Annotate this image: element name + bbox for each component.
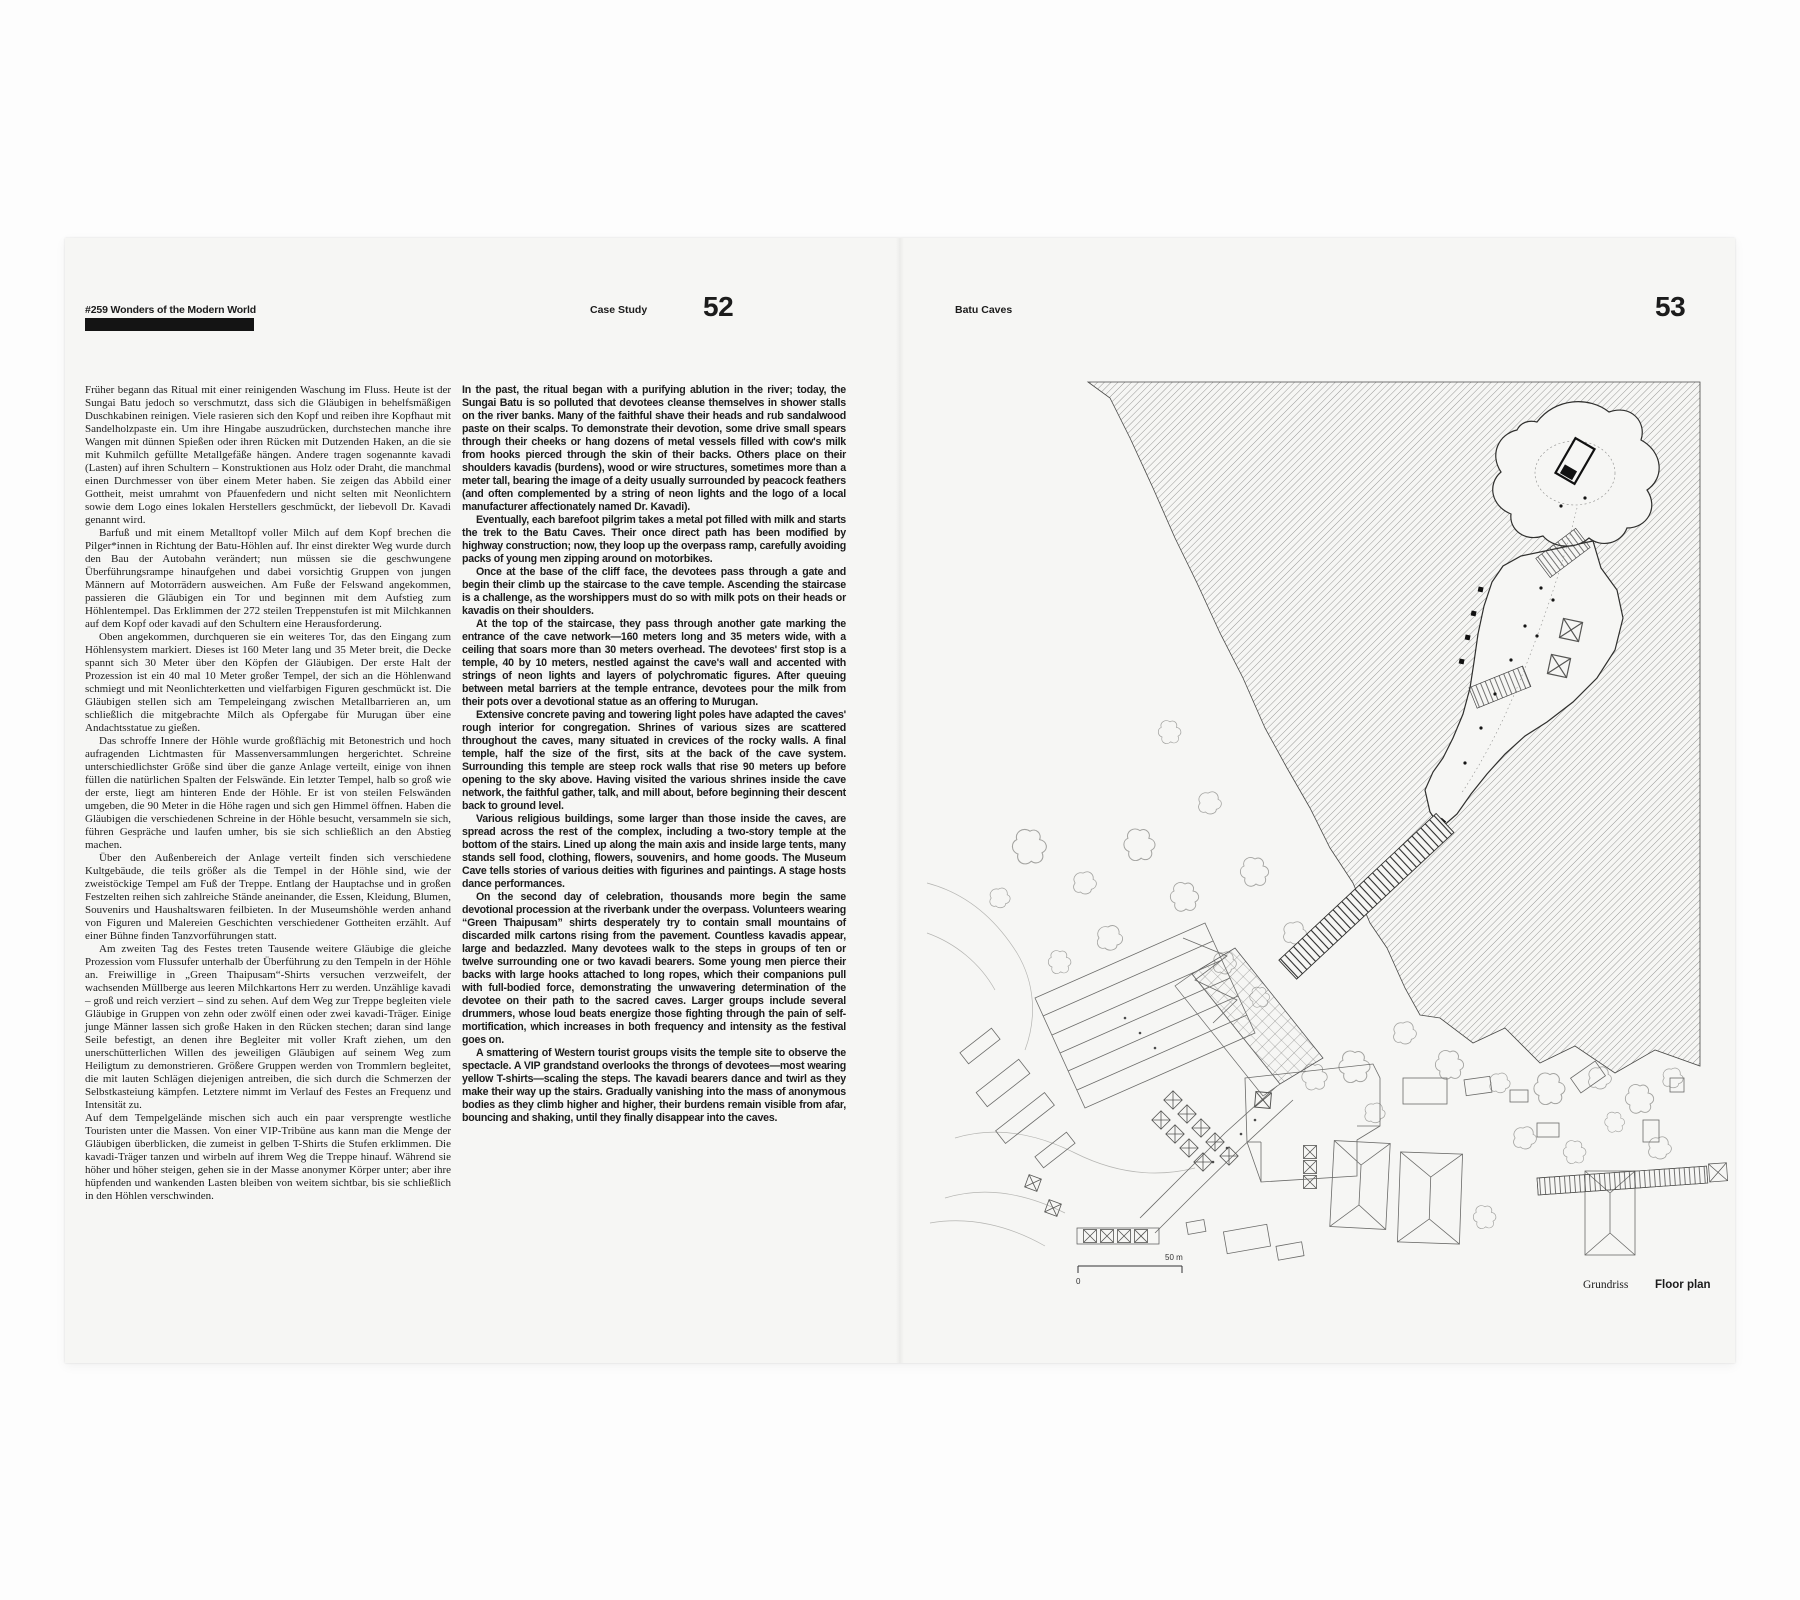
- english-paragraph-5: Extensive concrete paving and towering l…: [462, 709, 846, 813]
- page-number-52: 52: [703, 291, 733, 323]
- scale-fifty-label: 50 m: [1165, 1253, 1183, 1262]
- german-paragraph-7: Auf dem Tempelgelände mischen sich auch …: [85, 1112, 451, 1203]
- english-paragraph-3: Once at the base of the cliff face, the …: [462, 566, 846, 618]
- floor-plan-drawing: 0 50 m: [925, 378, 1735, 1313]
- plan-caption-english: Floor plan: [1655, 1279, 1711, 1291]
- german-paragraph-6: Am zweiten Tag des Festes treten Tausend…: [85, 943, 451, 1112]
- english-paragraph-1: In the past, the ritual began with a pur…: [462, 384, 846, 514]
- english-text-column: In the past, the ritual began with a pur…: [462, 384, 846, 1125]
- english-paragraph-6: Various religious buildings, some larger…: [462, 813, 846, 891]
- plan-caption-german: Grundriss: [1583, 1279, 1628, 1291]
- page-53: Batu Caves 53: [900, 238, 1735, 1363]
- german-paragraph-5: Über den Außenbereich der Anlage verteil…: [85, 852, 451, 943]
- english-paragraph-7: On the second day of celebration, thousa…: [462, 891, 846, 1047]
- series-title: #259 Wonders of the Modern World: [85, 304, 256, 316]
- stall-row-building: [1537, 1163, 1728, 1195]
- page-header-label: Batu Caves: [955, 304, 1012, 316]
- german-paragraph-3: Oben angekommen, durchqueren sie ein wei…: [85, 631, 451, 735]
- scale-bar: [1078, 1266, 1182, 1273]
- german-paragraph-1: Früher begann das Ritual mit einer reini…: [85, 384, 451, 527]
- screenshot-canvas: #259 Wonders of the Modern World Case St…: [0, 0, 1800, 1600]
- english-paragraph-2: Eventually, each barefoot pilgrim takes …: [462, 514, 846, 566]
- stall-squares: [1025, 1091, 1317, 1217]
- book-spread: #259 Wonders of the Modern World Case St…: [65, 238, 1735, 1363]
- terrain-contours: [927, 883, 1195, 1246]
- german-paragraph-2: Barfuß und mit einem Metalltopf voller M…: [85, 527, 451, 631]
- festival-tents: [1035, 923, 1255, 1108]
- scale-zero-label: 0: [1076, 1277, 1081, 1286]
- temple-complex-buildings: [1186, 1061, 1684, 1260]
- german-text-column: Früher begann das Ritual mit einer reini…: [85, 384, 451, 1203]
- german-paragraph-4: Das schroffe Innere der Höhle wurde groß…: [85, 735, 451, 852]
- page-52: #259 Wonders of the Modern World Case St…: [65, 238, 900, 1363]
- redacted-bar: [85, 318, 254, 331]
- section-label: Case Study: [590, 304, 647, 316]
- checkered-footbridge: [1077, 1228, 1159, 1244]
- english-paragraph-8: A smattering of Western tourist groups v…: [462, 1047, 846, 1125]
- page-number-53: 53: [1655, 291, 1685, 323]
- lamp-post-dots: [1124, 1017, 1257, 1164]
- english-paragraph-4: At the top of the staircase, they pass t…: [462, 618, 846, 709]
